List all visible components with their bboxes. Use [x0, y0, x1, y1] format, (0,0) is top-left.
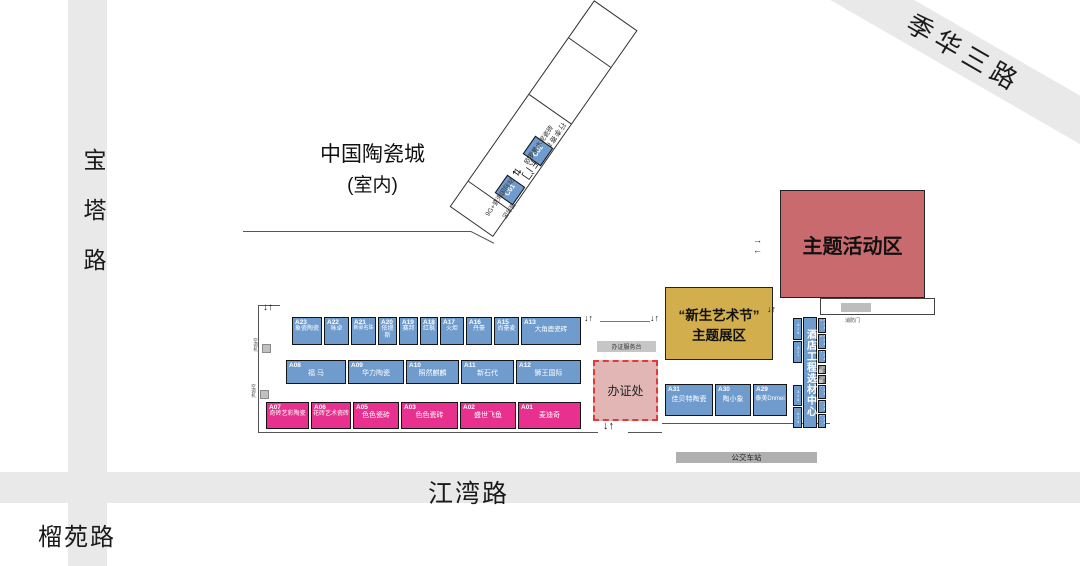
- road-jihua: 季华三路: [824, 0, 1080, 146]
- gate-building: [450, 0, 638, 237]
- booth-side-cell: A26: [793, 385, 802, 406]
- booth-a20: A20 依缦斯: [378, 317, 397, 345]
- badge-office-label: 办证处: [607, 382, 643, 399]
- road-label-baota: 宝塔路: [76, 148, 110, 298]
- booth-a30: A30 陶小象: [715, 384, 751, 416]
- booth-a21: A21 新豪名珠: [351, 317, 376, 345]
- ac-unit-box: [262, 344, 271, 353]
- activity-exit-arrow: ←: [753, 246, 762, 255]
- road-label-liuyuan: 榴苑路: [38, 517, 116, 552]
- fire-door-bay: [820, 298, 935, 315]
- venue-title: 中国陶瓷城 (室内): [300, 138, 445, 197]
- booth-a09: A09 华力陶瓷: [348, 360, 404, 384]
- wall-south-a: [258, 432, 598, 433]
- booth-side-cell: A24-3: [818, 350, 826, 363]
- wall-north-corridor: [600, 321, 650, 322]
- entrance-arrows: ↓↑: [767, 305, 776, 314]
- badge-office: 办证处: [593, 360, 658, 421]
- booth-a13: A13 大角鹿瓷砖: [521, 317, 581, 345]
- road-jiangwan: [0, 472, 1080, 503]
- booth-a11: A11 新石代: [461, 360, 514, 384]
- booth-side-cell: A24-5: [818, 400, 826, 413]
- booth-a29: A29 泰美Dnmei: [753, 384, 787, 416]
- gate-building-divider: [569, 38, 611, 68]
- booth-a05: A05 色色瓷砖: [353, 402, 399, 429]
- badge-desk-label: 办证服务台: [611, 342, 641, 351]
- zone-hotel-material-center: 酒店工程选材中心: [803, 317, 817, 428]
- bus-station: 公交车站: [676, 452, 817, 463]
- wall-south-b: [628, 432, 662, 433]
- booth-a08: A08 福 马: [286, 360, 346, 384]
- wall-left: [258, 305, 259, 433]
- activity-entrance-arrow: →: [753, 236, 762, 245]
- booth-side-cell: A24-2: [818, 334, 826, 349]
- booth-a22: A22 咏卓: [324, 317, 349, 345]
- venue-name: 中国陶瓷城: [300, 138, 445, 168]
- booth-a10: A10 照然麒麟: [406, 360, 459, 384]
- booth-side-cell: A28: [793, 318, 802, 340]
- wall-top: [243, 231, 471, 232]
- booth-a02: A02 盛世飞鱼: [460, 402, 516, 429]
- booth-side-cell: A24-4: [818, 385, 826, 399]
- zone-activity-label: 主题活动区: [781, 191, 924, 297]
- road-label-jihua: 季华三路: [824, 0, 1080, 146]
- ac-unit-cell: 空调机: [818, 375, 826, 384]
- ac-unit-label: 空调机: [253, 338, 258, 352]
- zone-art-festival: “新生艺术节” 主题展区: [665, 287, 773, 360]
- booth-a07: A07 奇砖艺彩陶瓷: [266, 402, 309, 429]
- booth-side-cell: A27: [793, 341, 802, 363]
- entrance-arrows: ↓↑: [603, 421, 614, 432]
- booth-a31: A31 佳贝特陶瓷: [665, 384, 713, 416]
- booth-side-cell: A24-6: [818, 414, 826, 428]
- ac-unit-box: [260, 390, 269, 399]
- ac-unit-cell: 空调机: [818, 365, 826, 374]
- booth-a23: A23 象瓷陶瓷: [292, 317, 322, 345]
- booth-a12: A12 狮王国际: [516, 360, 581, 384]
- booth-a15: A15 尚豪麦: [494, 317, 519, 345]
- booth-a17: A17 火炬: [440, 317, 464, 345]
- badge-desk: 办证服务台: [597, 341, 656, 352]
- entrance-arrows: ↓↑: [584, 314, 593, 323]
- booth-a18: A18 红枫: [420, 317, 438, 345]
- booth-a01: A01 麦迪奇: [518, 402, 581, 429]
- zone-activity: 主题活动区: [780, 190, 925, 298]
- entrance-arrows: ↓↑: [650, 314, 659, 323]
- bus-station-label: 公交车站: [732, 452, 762, 463]
- entrance-arrows: ↓↑: [263, 303, 273, 313]
- booth-side-cell: A24-1: [818, 318, 826, 333]
- booth-a03: A03 色色瓷砖: [401, 402, 458, 429]
- booth-a06: A06 花砖艺术瓷砖: [311, 402, 351, 429]
- fire-door-block: [841, 303, 871, 312]
- zone-hotel-material-center-label: 酒店工程选材中心: [803, 329, 818, 417]
- ac-unit-label: 空调机: [251, 384, 256, 398]
- venue-sub: (室内): [300, 170, 445, 197]
- zone-art-festival-line2: 主题展区: [692, 324, 746, 344]
- booth-a19: A19 赛邦: [399, 317, 418, 345]
- gate-building-divider: [529, 94, 571, 124]
- venue-floor-plan: 宝塔路 江湾路 榴苑路 季华三路 中国陶瓷城 (室内) 东门 行李寄存处 服务区…: [0, 0, 1080, 566]
- booth-a16: A16 丹豪: [466, 317, 492, 345]
- zone-art-festival-line1: “新生艺术节”: [679, 304, 760, 324]
- fire-door-label: 消防门: [845, 317, 860, 324]
- booth-side-cell: A25: [793, 407, 802, 428]
- road-label-jiangwan: 江湾路: [428, 474, 509, 510]
